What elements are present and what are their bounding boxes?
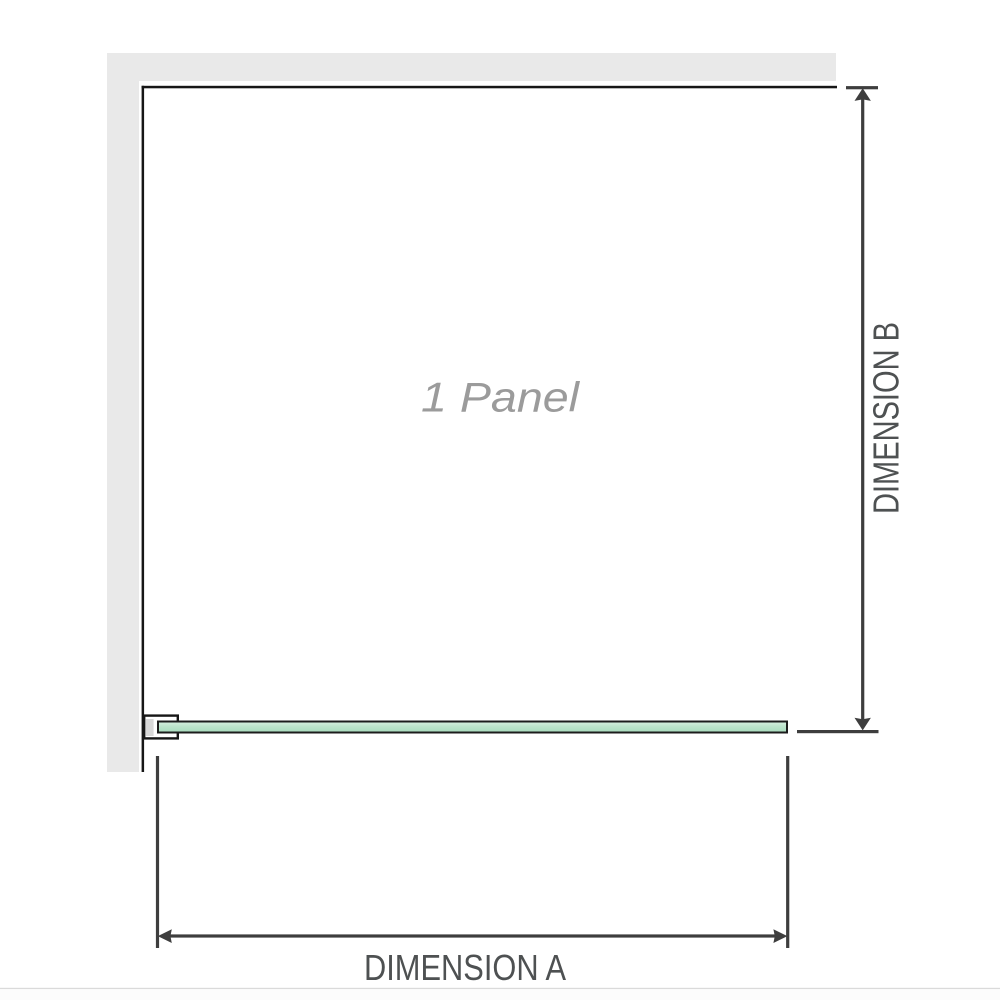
svg-text:DIMENSION B: DIMENSION B (866, 322, 907, 514)
svg-text:1 Panel: 1 Panel (421, 374, 581, 421)
svg-text:DIMENSION A: DIMENSION A (364, 947, 567, 988)
